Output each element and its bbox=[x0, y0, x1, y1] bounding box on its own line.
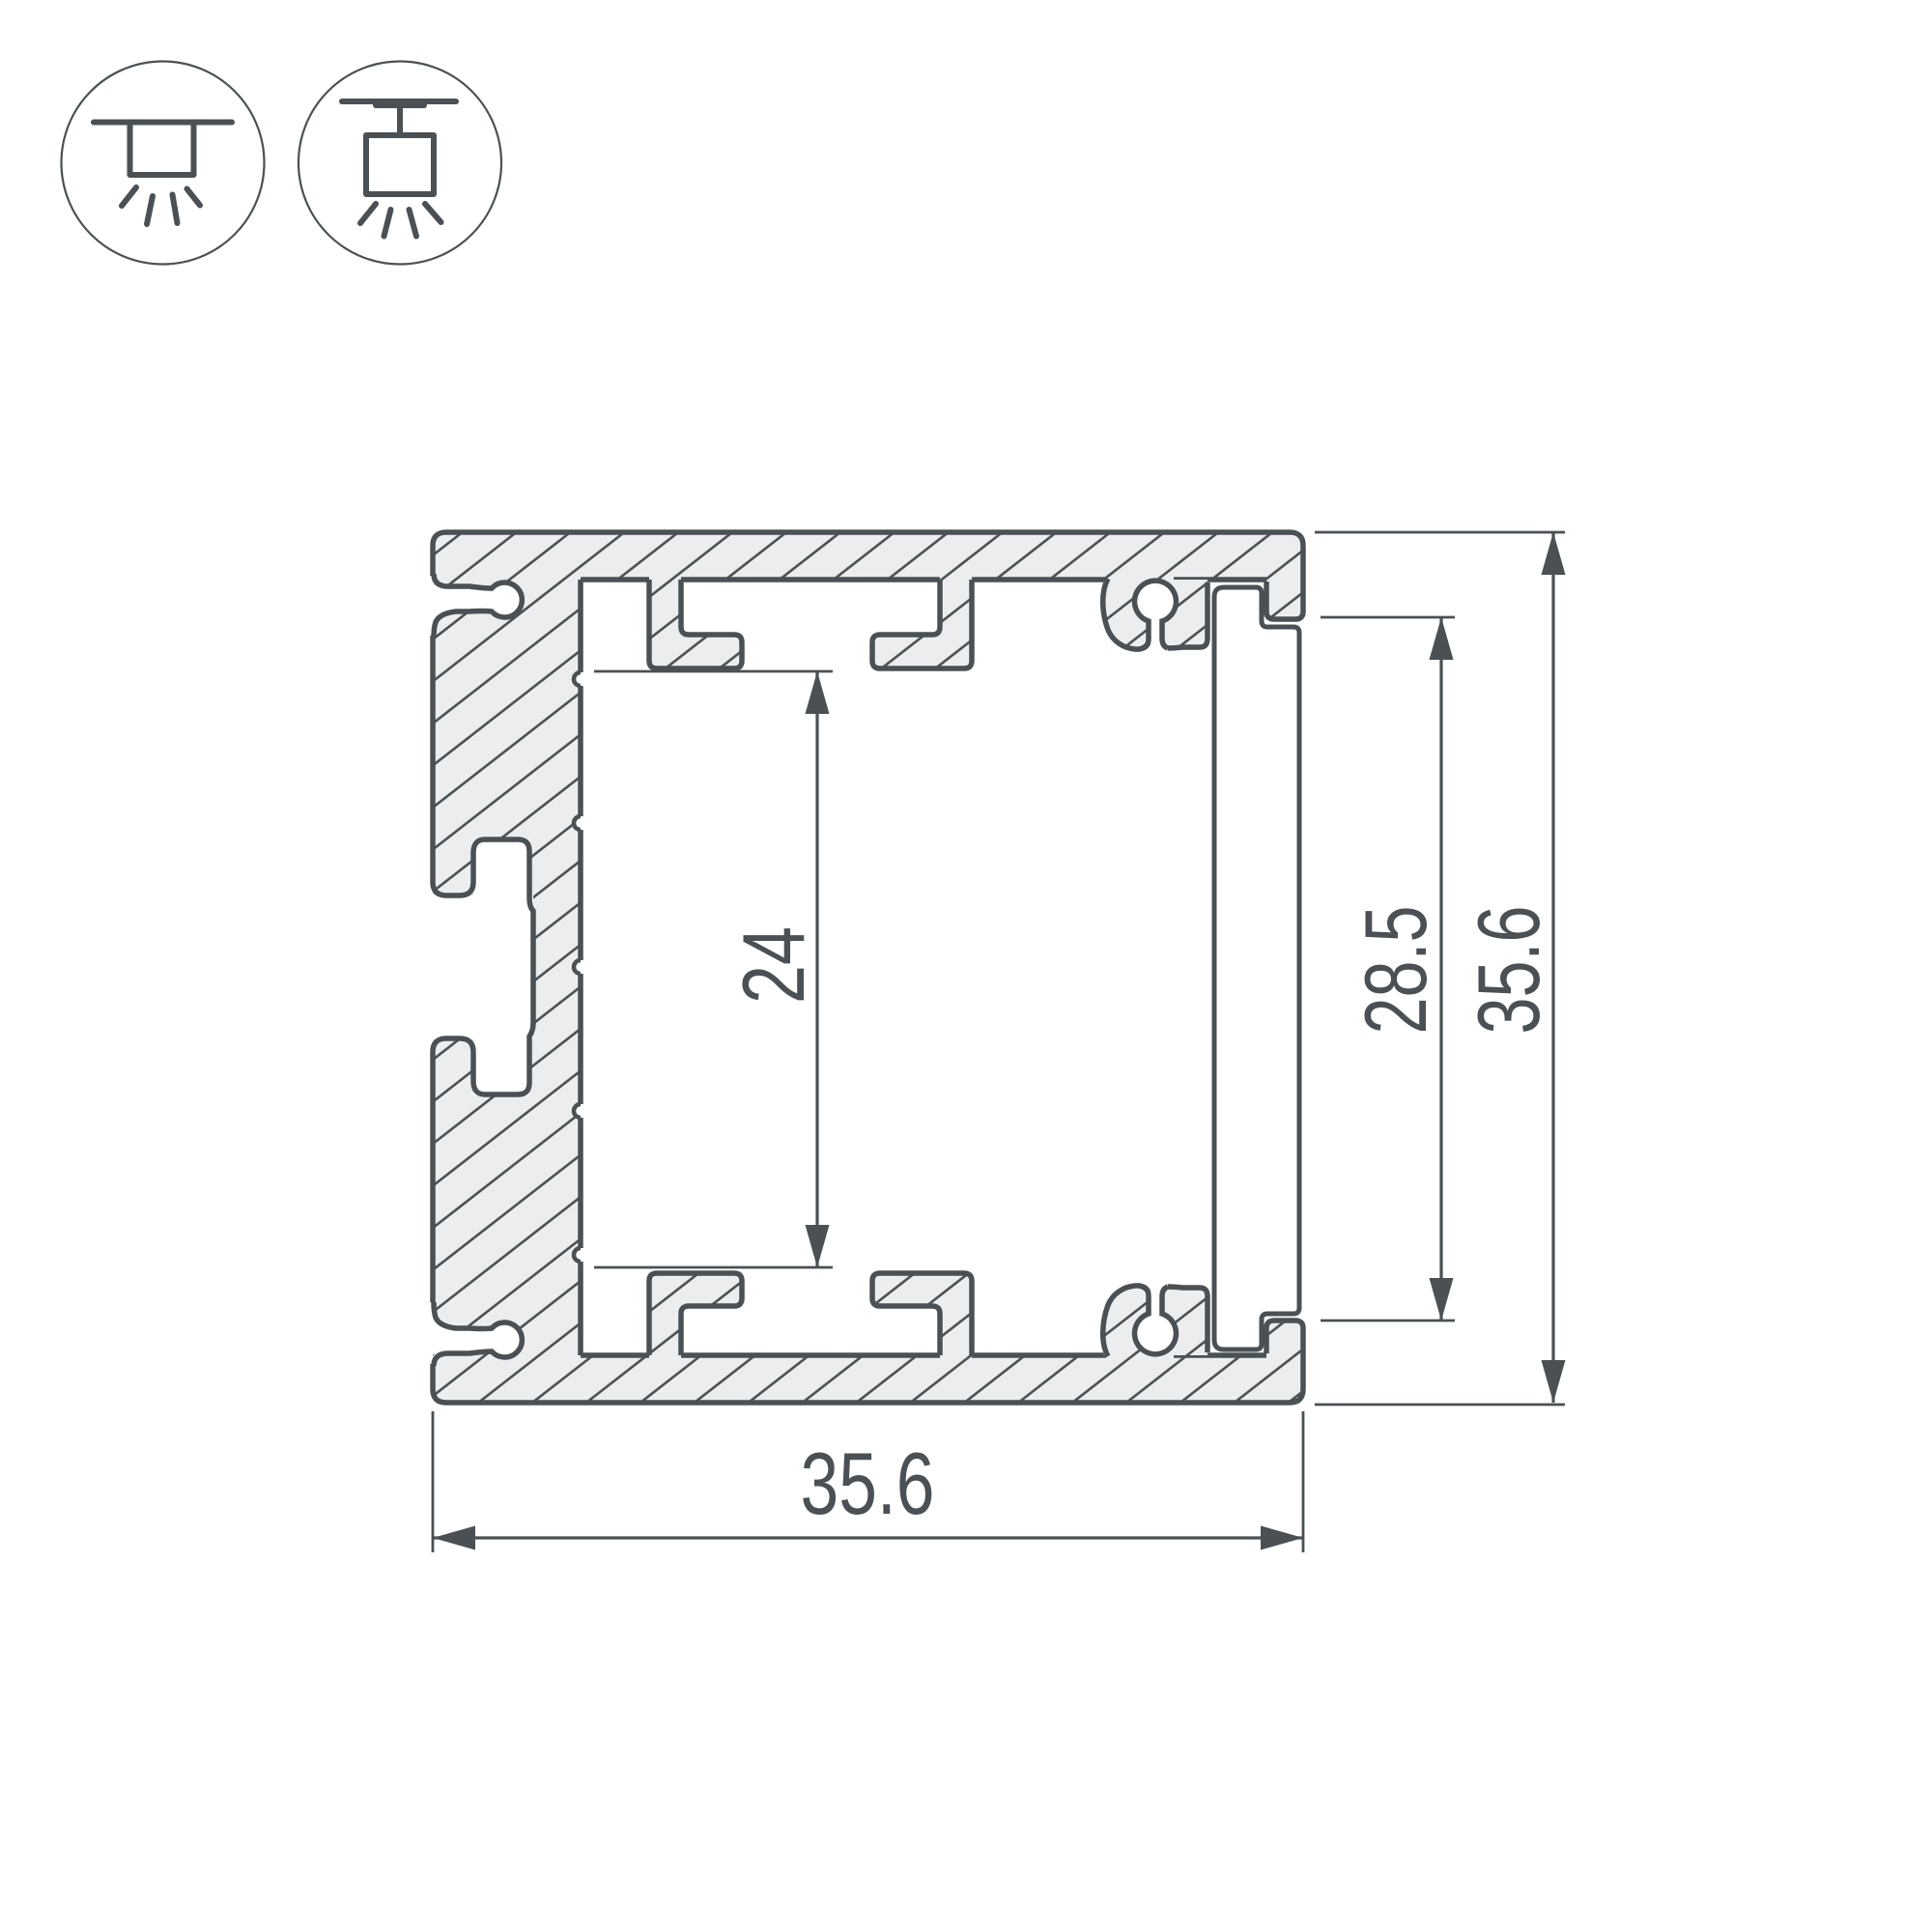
svg-text:28.5: 28.5 bbox=[1348, 906, 1445, 1035]
svg-text:35.6: 35.6 bbox=[1461, 906, 1558, 1035]
svg-text:35.6: 35.6 bbox=[801, 1435, 935, 1533]
svg-text:24: 24 bbox=[725, 926, 823, 1004]
